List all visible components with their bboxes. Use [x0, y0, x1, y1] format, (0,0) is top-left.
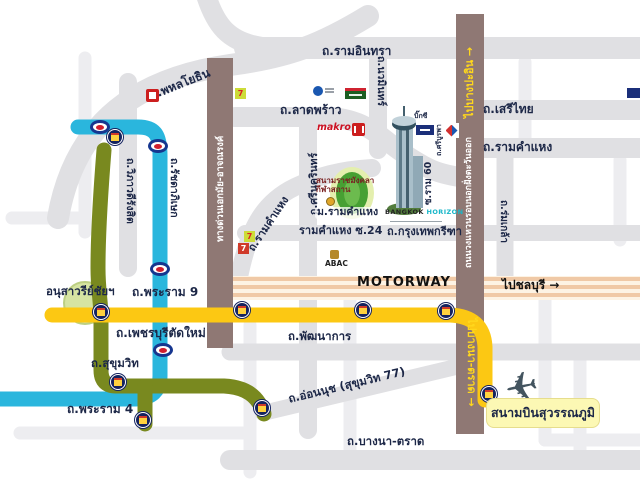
road-label-ramkhamhaeng-soi24: รามคำแหง ซ.24 [299, 225, 382, 237]
building-logo-tagline [390, 221, 442, 222]
building-logo-bangkok: BANGKOK [385, 208, 424, 216]
toll-gate-icon [254, 400, 270, 416]
department-store-icon [146, 89, 159, 102]
road-label-sukhumvit: ถ.สุขุมวิท [91, 357, 139, 370]
landmark-label-abac: ABAC [325, 260, 348, 268]
bangkok-horizon-tower [387, 106, 423, 215]
road-label-ladprao: ถ.ลาดพร้าว [280, 104, 342, 117]
ramkhamhaeng-university-emblem-icon [326, 197, 335, 206]
building-logo: BANGKOK HORIZON [385, 209, 463, 216]
bangkok-location-map: ถ.พหลโยธิน ถ.รามอินทรา ถ.ลาดพร้าว ถ.นวมิ… [0, 0, 640, 480]
road-label-phetchaburi: ถ.เพชรบุรีตัดใหม่ [116, 327, 206, 340]
store-logo-icon [627, 88, 640, 98]
carrefour-icon [444, 123, 459, 138]
mrt-station-icon [153, 343, 173, 357]
toll-gate-icon [107, 129, 123, 145]
toll-gate-icon [93, 304, 109, 320]
big-c-label: บิ๊กซี [414, 113, 427, 121]
road-label-serithai: ถ.เสรีไทย [483, 103, 534, 116]
stadium-label: สนามราชมังคลา กีฬาสถาน [316, 176, 374, 194]
road-label-krungthep-kreetha: ถ.กรุงเทพกรีฑา [387, 226, 462, 238]
direction-label-to-bangna-trad: ไปบางนา-ตราด → [465, 318, 477, 407]
expressway-label-outer-ring: ถนนวงแหวนรอบนอกฝั่งตะวันออก [465, 137, 475, 268]
road-label-rama9: ถ.พระราม 9 [132, 286, 198, 299]
store-logo-icon [313, 86, 323, 96]
stadium-label-line1: สนามราชมังคลา [316, 176, 374, 185]
mrt-station-icon [148, 139, 168, 153]
the-mall-icon [352, 123, 365, 136]
road-label-vibhavadi: ถ.วิภาวดีรังสิต [123, 158, 135, 224]
road-label-phatthanakan: ถ.พัฒนาการ [288, 330, 351, 343]
seven-eleven-icon: 7 [235, 88, 246, 99]
landmark-label-victory-monument: อนุสาวรีย์ชัยฯ [46, 285, 115, 298]
road-label-rama4: ถ.พระราม 4 [67, 403, 133, 416]
mrt-station-icon [150, 262, 170, 276]
expressway-label-ekamai: ทางด่วนเอกมัย-อาจณรงค์ [216, 136, 226, 242]
road-label-romklao: ถ.ร่มเกล้า [498, 200, 509, 243]
road-label-motorway: MOTORWAY [357, 276, 451, 290]
big-c-sign-icon [416, 125, 434, 135]
direction-label-to-chonburi: ไปชลบุรี → [502, 279, 559, 292]
road-label-ratchadaphisek: ถ.รัชดาภิเษก [167, 158, 179, 218]
seven-eleven-icon: 7 [244, 231, 255, 242]
abac-emblem-icon [330, 250, 339, 259]
mrt-station-icon [90, 120, 110, 134]
road-label-sriburapha: ถ.ศรีบูรพา [436, 124, 444, 156]
convenience-store-icon: 7 [238, 243, 249, 254]
toll-gate-icon [438, 303, 454, 319]
direction-label-to-bang-pa-in: ไปบางปะอิน → [464, 47, 476, 118]
toll-gate-icon [355, 302, 371, 318]
landmark-label-ram-university: ม.รามคำแหง [315, 207, 380, 219]
tesco-lotus-icon [345, 88, 366, 99]
road-label-ramkhamhaeng-east: ถ.รามคำแหง [483, 141, 552, 154]
building-logo-horizon: HORIZON [427, 208, 464, 216]
makro-logo: makro [317, 123, 351, 133]
toll-gate-icon [135, 412, 151, 428]
suvarnabhumi-airport-label: สนามบินสุวรรณภูมิ [486, 398, 600, 428]
toll-gate-icon [110, 374, 126, 390]
toll-gate-icon [234, 302, 250, 318]
stadium-label-line2: กีฬาสถาน [316, 185, 374, 194]
road-label-bangna-trad: ถ.บางนา-ตราด [347, 435, 424, 448]
road-label-navamin: ถ.นวมินทร์ [374, 56, 386, 106]
road-label-soi-ram-60: ซ.ราม 60 [424, 162, 434, 205]
